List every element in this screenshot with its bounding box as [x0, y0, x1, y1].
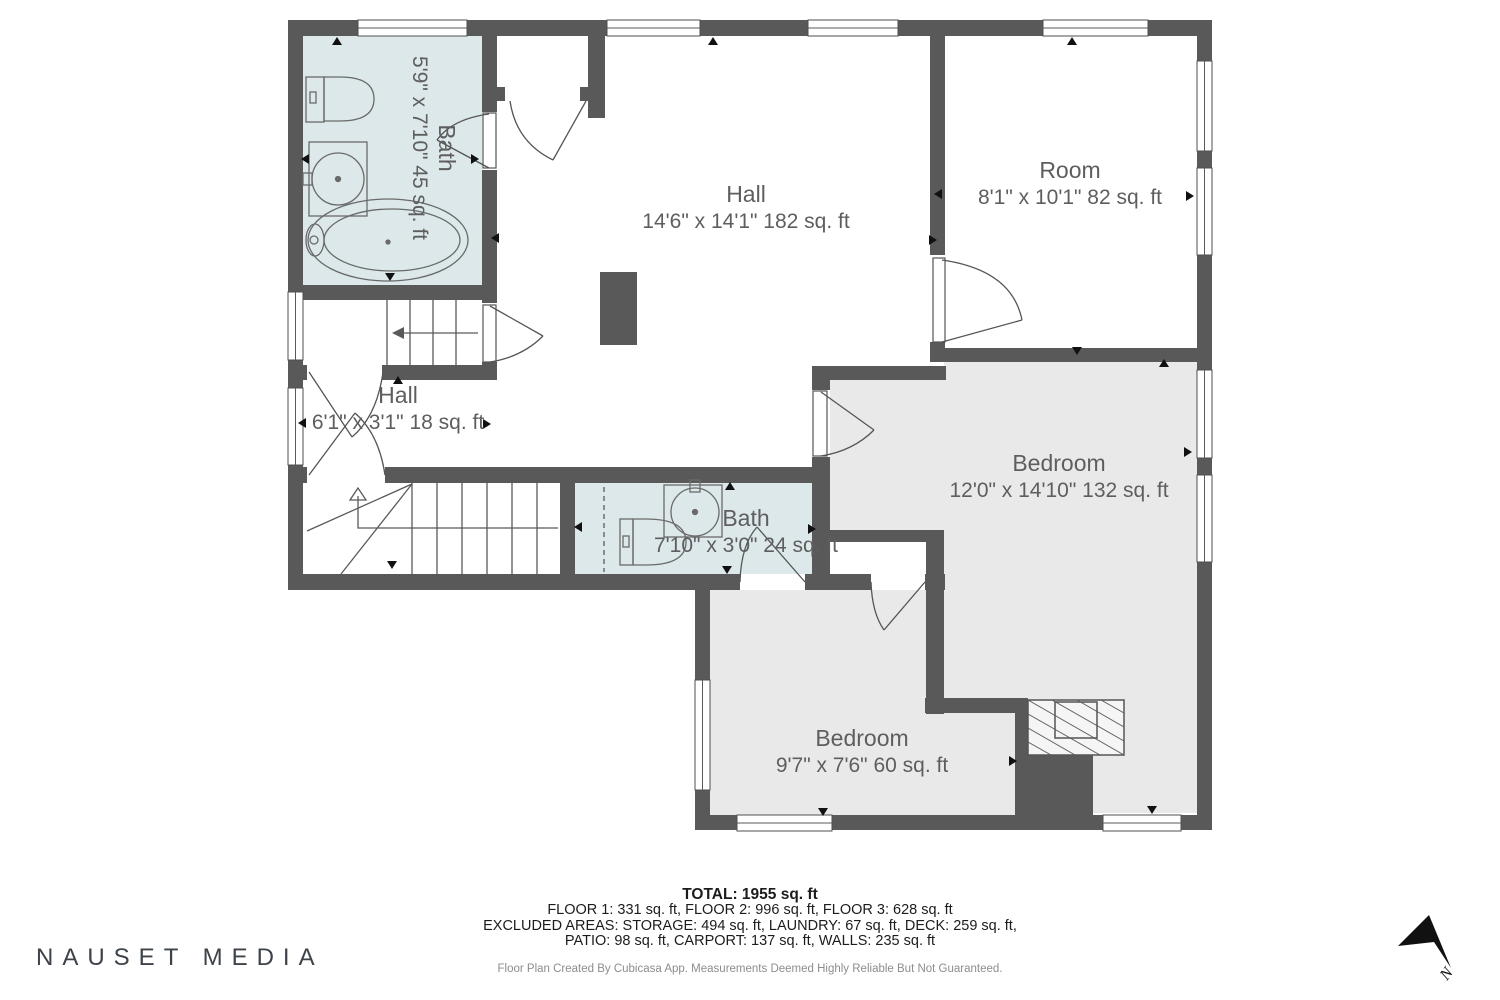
room-dimensions: 7'10" x 3'0" 24 sq. ft [654, 532, 838, 560]
room-label-bath-upper: Bath 5'9" x 7'10" 45 sq. ft [405, 56, 461, 240]
floor-areas: FLOOR 1: 331 sq. ft, FLOOR 2: 996 sq. ft… [0, 903, 1500, 919]
room-name: Bedroom [776, 724, 948, 752]
watermark-logo: NAUSET MEDIA [36, 944, 324, 972]
hatched-shaft [1028, 700, 1124, 755]
room-dimensions: 14'6" x 14'1" 182 sq. ft [642, 208, 849, 236]
room-label-hall-small: Hall 6'1" x 3'1" 18 sq. ft [312, 381, 484, 437]
room-dimensions: 6'1" x 3'1" 18 sq. ft [312, 409, 484, 437]
room-dimensions: 9'7" x 7'6" 60 sq. ft [776, 752, 948, 780]
stairs-upper [387, 300, 478, 365]
room-name: Bath [654, 504, 838, 532]
pillar [600, 272, 637, 345]
stairs-direction-arrow [392, 327, 404, 339]
room-label-bedroom-small: Bedroom 9'7" x 7'6" 60 sq. ft [776, 724, 948, 780]
room-name: Hall [642, 180, 849, 208]
room-dimensions: 8'1" x 10'1" 82 sq. ft [978, 184, 1162, 212]
room-dimensions: 5'9" x 7'10" 45 sq. ft [405, 56, 433, 240]
floor-plan-page: N Bath 5'9" x 7'10" 45 sq. ft Hall 14'6"… [0, 0, 1500, 1000]
room-name: Bath [433, 56, 461, 240]
area-summary: TOTAL: 1955 sq. ft FLOOR 1: 331 sq. ft, … [0, 887, 1500, 950]
excluded-areas-1: EXCLUDED AREAS: STORAGE: 494 sq. ft, LAU… [0, 919, 1500, 935]
room-label-room-upper: Room 8'1" x 10'1" 82 sq. ft [978, 156, 1162, 212]
room-name: Hall [312, 381, 484, 409]
room-label-bedroom-main: Bedroom 12'0" x 14'10" 132 sq. ft [949, 449, 1168, 505]
door-arc [942, 260, 1022, 342]
stairs-lower [307, 483, 558, 574]
room-name: Bedroom [949, 449, 1168, 477]
door-arc [490, 306, 543, 362]
room-label-bath-middle: Bath 7'10" x 3'0" 24 sq. ft [654, 504, 838, 560]
door-arc [510, 101, 586, 160]
floor-plan-drawing: N [0, 0, 1500, 1000]
total-area: TOTAL: 1955 sq. ft [0, 887, 1500, 903]
room-name: Room [978, 156, 1162, 184]
room-dimensions: 12'0" x 14'10" 132 sq. ft [949, 477, 1168, 505]
room-label-hall-main: Hall 14'6" x 14'1" 182 sq. ft [642, 180, 849, 236]
